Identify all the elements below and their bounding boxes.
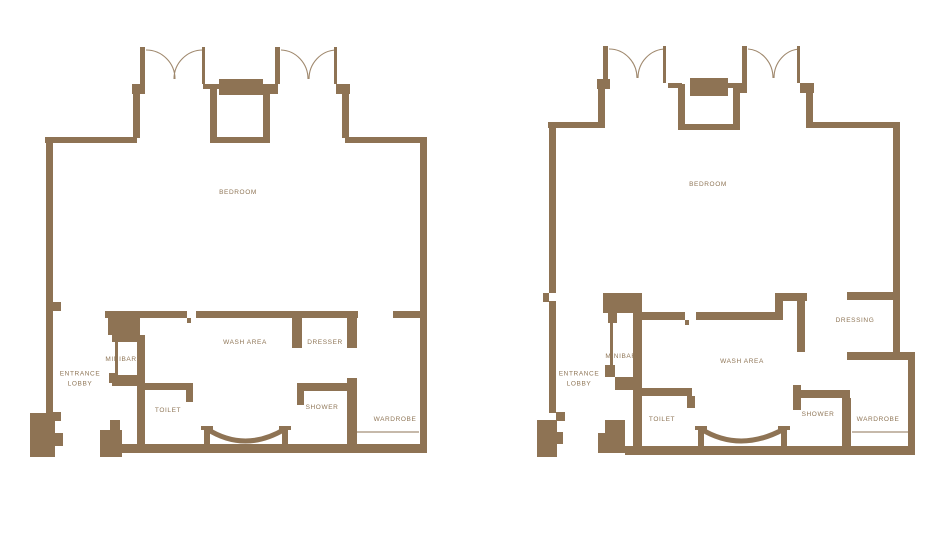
room-label-toilet: TOILET (155, 406, 181, 416)
room-label-shower: SHOWER (802, 410, 835, 420)
room-label-wardrobe: WARDROBE (374, 415, 417, 425)
floorplan-left-drawing (28, 40, 470, 460)
room-label-wardrobe: WARDROBE (857, 415, 900, 425)
room-label-bedroom: BEDROOM (689, 180, 727, 190)
room-label-shower: SHOWER (306, 403, 339, 413)
floorplan-right: BEDROOM WASH AREA DRESSING MINIBAR ENTRA… (535, 40, 920, 460)
room-label-bedroom: BEDROOM (219, 188, 257, 198)
walls-path (30, 47, 427, 457)
room-label-wash-area: WASH AREA (720, 357, 764, 367)
room-label-dressing: DRESSING (836, 316, 875, 326)
floorplan-canvas: BEDROOM WASH AREA DRESSER MINIBAR ENTRAN… (0, 0, 940, 540)
floorplan-left: BEDROOM WASH AREA DRESSER MINIBAR ENTRAN… (28, 40, 470, 460)
room-label-entrance-lobby: ENTRANCE LOBBY (559, 369, 600, 389)
room-label-wash-area: WASH AREA (223, 338, 267, 348)
room-label-toilet: TOILET (649, 415, 675, 425)
room-label-entrance-lobby: ENTRANCE LOBBY (60, 369, 101, 389)
walls-path (537, 46, 915, 457)
room-label-minibar: MINIBAR (105, 355, 136, 365)
curved-partition (207, 429, 285, 441)
floorplan-right-drawing (535, 40, 920, 460)
door-swing-arcs (609, 49, 800, 78)
curved-partition (701, 429, 784, 441)
room-label-dresser: DRESSER (307, 338, 343, 348)
room-label-minibar: MINIBAR (605, 352, 636, 362)
door-swing-arcs (146, 50, 336, 79)
